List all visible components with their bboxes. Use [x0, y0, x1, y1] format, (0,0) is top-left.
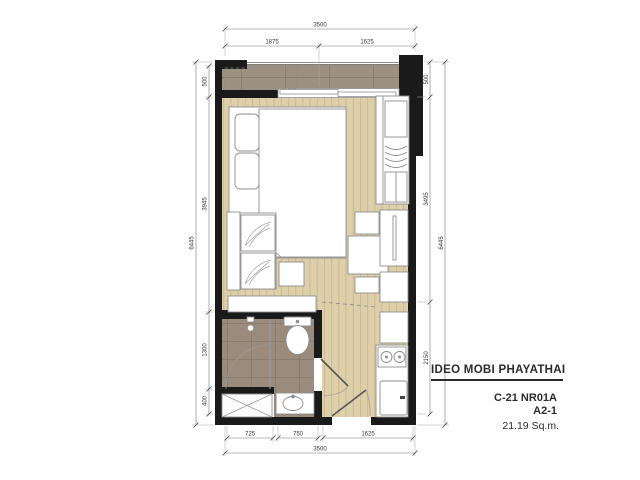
toilet-flush-button — [296, 320, 299, 323]
dim-left-seg-3: 400 — [203, 395, 209, 406]
floor-plan-page: 3500 1875 1625 725 750 1625 3500 500 394… — [0, 0, 640, 480]
dim-right-overall: 6445 — [439, 236, 445, 250]
dim-right-seg-1: 3495 — [424, 192, 430, 206]
unit-code: C-21 NR01A — [431, 392, 563, 405]
shower-head-icon — [247, 317, 254, 322]
wall-bathroom-right-lower — [314, 391, 322, 425]
dining-stool-bottom — [355, 277, 379, 293]
project-name: IDEO MOBI PHAYATHAI — [431, 364, 563, 381]
mid-cabinet — [380, 272, 408, 302]
pillow-top — [235, 114, 259, 151]
unit-type: A2-1 — [431, 405, 563, 418]
wall-left — [215, 60, 222, 425]
title-block: IDEO MOBI PHAYATHAI C-21 NR01A A2-1 21.1… — [431, 364, 563, 433]
sink-drain-left — [386, 356, 388, 358]
dim-bottom-seg-1: 750 — [293, 432, 304, 438]
side-table — [279, 262, 304, 286]
low-cabinet — [380, 312, 408, 343]
dim-right-seg-2: 2150 — [424, 351, 430, 365]
wall-balcony-divider — [222, 90, 278, 98]
dim-bottom-overall: 3500 — [313, 447, 327, 453]
washing-machine-control — [400, 396, 405, 399]
dim-bottom-seg-0: 725 — [245, 432, 256, 438]
basin-icon — [283, 397, 303, 411]
cabinet-handle — [393, 216, 396, 260]
dim-top-seg-1: 1625 — [360, 40, 374, 46]
dim-left-overall: 6445 — [190, 236, 196, 250]
basin-faucet-icon — [292, 395, 295, 398]
dining-stool-top — [355, 212, 379, 234]
toilet-bowl — [286, 326, 309, 355]
dim-left-seg-2: 1300 — [203, 343, 209, 357]
pillow-bottom — [235, 153, 259, 189]
dim-left-seg-1: 3945 — [203, 197, 209, 211]
kitchen — [376, 345, 408, 417]
tv-console — [228, 296, 316, 312]
dim-left-seg-0: 500 — [203, 76, 209, 87]
wall-bathroom-right-upper — [314, 310, 322, 358]
sink-drain-right — [399, 356, 401, 358]
wardrobe-shelf-top — [385, 101, 407, 137]
window-panel-left — [280, 90, 338, 95]
unit-area: 21.19 Sq.m. — [431, 419, 563, 433]
wall-bottom-right — [371, 417, 416, 425]
dim-bottom-seg-2: 1625 — [361, 432, 375, 438]
wall-ac-ledge — [218, 387, 274, 394]
dim-right-seg-0: 500 — [424, 74, 430, 85]
cabinet-column — [380, 210, 408, 343]
wardrobe — [376, 96, 409, 204]
ac-ledge — [222, 394, 272, 417]
shower-rose-icon — [247, 325, 253, 331]
dim-top-overall: 3500 — [313, 23, 327, 29]
sofa — [227, 212, 276, 290]
dim-top-seg-0: 1875 — [265, 40, 279, 46]
sofa-backrest — [227, 212, 240, 290]
